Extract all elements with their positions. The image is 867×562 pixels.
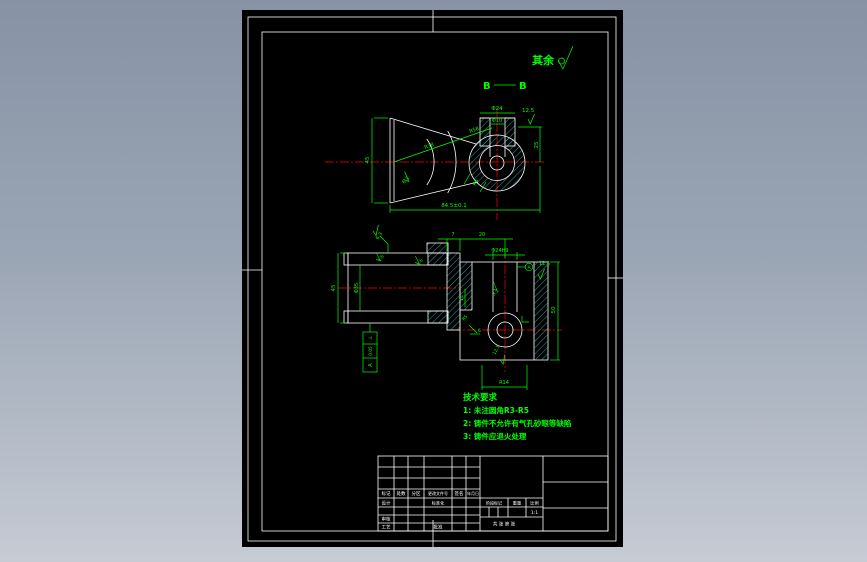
tb-sheets: 共 张 第 张 — [493, 521, 516, 528]
tb-audit: 审核 — [382, 516, 391, 523]
dim-dia-bore: Φ35 — [354, 283, 360, 293]
section-letter-right: B — [519, 81, 527, 92]
tb-rev-count: 处数 — [397, 490, 406, 497]
tech-req-item-2: 2: 铸件不允许有气孔砂眼等缺陷 — [463, 418, 571, 428]
dim-dia-outer: Φ24 — [491, 106, 503, 112]
technical-requirements: 技术要求 1: 未注圆角R3-R5 2: 铸件不允许有气孔砂眼等缺陷 3: 铸件… — [463, 392, 571, 441]
tb-weight: 重量 — [513, 500, 521, 507]
dim-left: 45 — [365, 156, 371, 163]
dim-wall-7: 7 — [451, 232, 454, 238]
section-view: 6.3 45 Φ35 1.6 1.6 7 20 Φ24H9 — [331, 225, 562, 390]
section-view-outline — [344, 243, 548, 360]
dim-rough-top-left: 6.3 — [375, 231, 384, 241]
dim-dia-hole: Φ10 — [492, 118, 502, 124]
dim-rough-hole: 3.2 — [491, 288, 500, 297]
top-view-outline — [390, 118, 525, 203]
gdt-value: 0.05 — [368, 346, 373, 356]
dim-radius-outer: R58 — [469, 126, 480, 135]
dim-notch-14: 14 — [459, 295, 465, 301]
dim-rough-top: 12.5 — [522, 108, 535, 114]
tb-rev-zone: 分区 — [412, 490, 421, 497]
tb-standardization: 标准化 — [432, 500, 445, 507]
top-view: Φ24 Φ10 12.5 25 45 84.5±0.1 R58 R38 6.3 … — [325, 106, 545, 220]
dim-bottom-r14: R14 — [499, 380, 509, 386]
tb-scale: 比例 — [530, 500, 538, 507]
sheet-frame — [242, 10, 623, 547]
dim-rough-top-right: 12.5 — [539, 261, 550, 267]
tb-scale-value: 1:1 — [531, 510, 538, 516]
gdt-frame: ⊥ 0.05 A — [363, 323, 377, 372]
title-block: 标记 处数 分区 更改文件号 签名 年月日 设计 标准化 审核 工艺 批准 阶段… — [378, 456, 608, 531]
gdt-symbol: ⊥ — [368, 336, 374, 340]
tb-rev-docno: 更改文件号 — [428, 490, 448, 496]
dim-step-6: 6 — [478, 328, 481, 334]
surplus-roughness-note: 其余 — [532, 46, 573, 69]
tb-stage: 阶段标记 — [486, 500, 502, 506]
section-letter-left: B — [483, 81, 491, 92]
tb-approve: 批准 — [434, 524, 443, 531]
dim-bottom: 84.5±0.1 — [441, 203, 467, 209]
dim-rough-bore-top: 1.6 — [377, 254, 386, 263]
dim-offset-20: 20 — [479, 232, 485, 238]
desktop-background: { "palette": { "background_top": "#8793a… — [0, 0, 867, 562]
cad-drawing-canvas[interactable]: 其余 B B — [242, 10, 623, 547]
gdt-datum: A — [368, 363, 374, 367]
dim-radius-corner: R5 — [461, 314, 470, 323]
dim-dia-boss: Φ24H9 — [491, 248, 508, 254]
tb-rev-mark: 标记 — [382, 490, 391, 497]
tb-process: 工艺 — [382, 525, 391, 531]
tech-req-item-1: 1: 未注圆角R3-R5 — [463, 405, 529, 415]
roughness-check-icon — [558, 46, 573, 69]
dim-right-50: 50 — [551, 306, 557, 313]
tb-rev-sign: 签名 — [455, 490, 464, 497]
tb-rev-date: 年月日 — [467, 490, 479, 496]
dim-left-45: 45 — [331, 284, 337, 291]
dim-right: 25 — [534, 141, 540, 148]
tb-design: 设计 — [382, 500, 391, 507]
drawing-sheet: 其余 B B — [242, 10, 623, 547]
surplus-label: 其余 — [532, 53, 555, 67]
tech-req-item-3: 3: 铸件应退火处理 — [463, 431, 527, 441]
tech-req-title: 技术要求 — [463, 392, 498, 403]
section-label: B B — [483, 81, 527, 92]
dim-radius-inner: R38 — [424, 142, 435, 151]
dim-rough-face: 6.3 — [401, 176, 411, 186]
